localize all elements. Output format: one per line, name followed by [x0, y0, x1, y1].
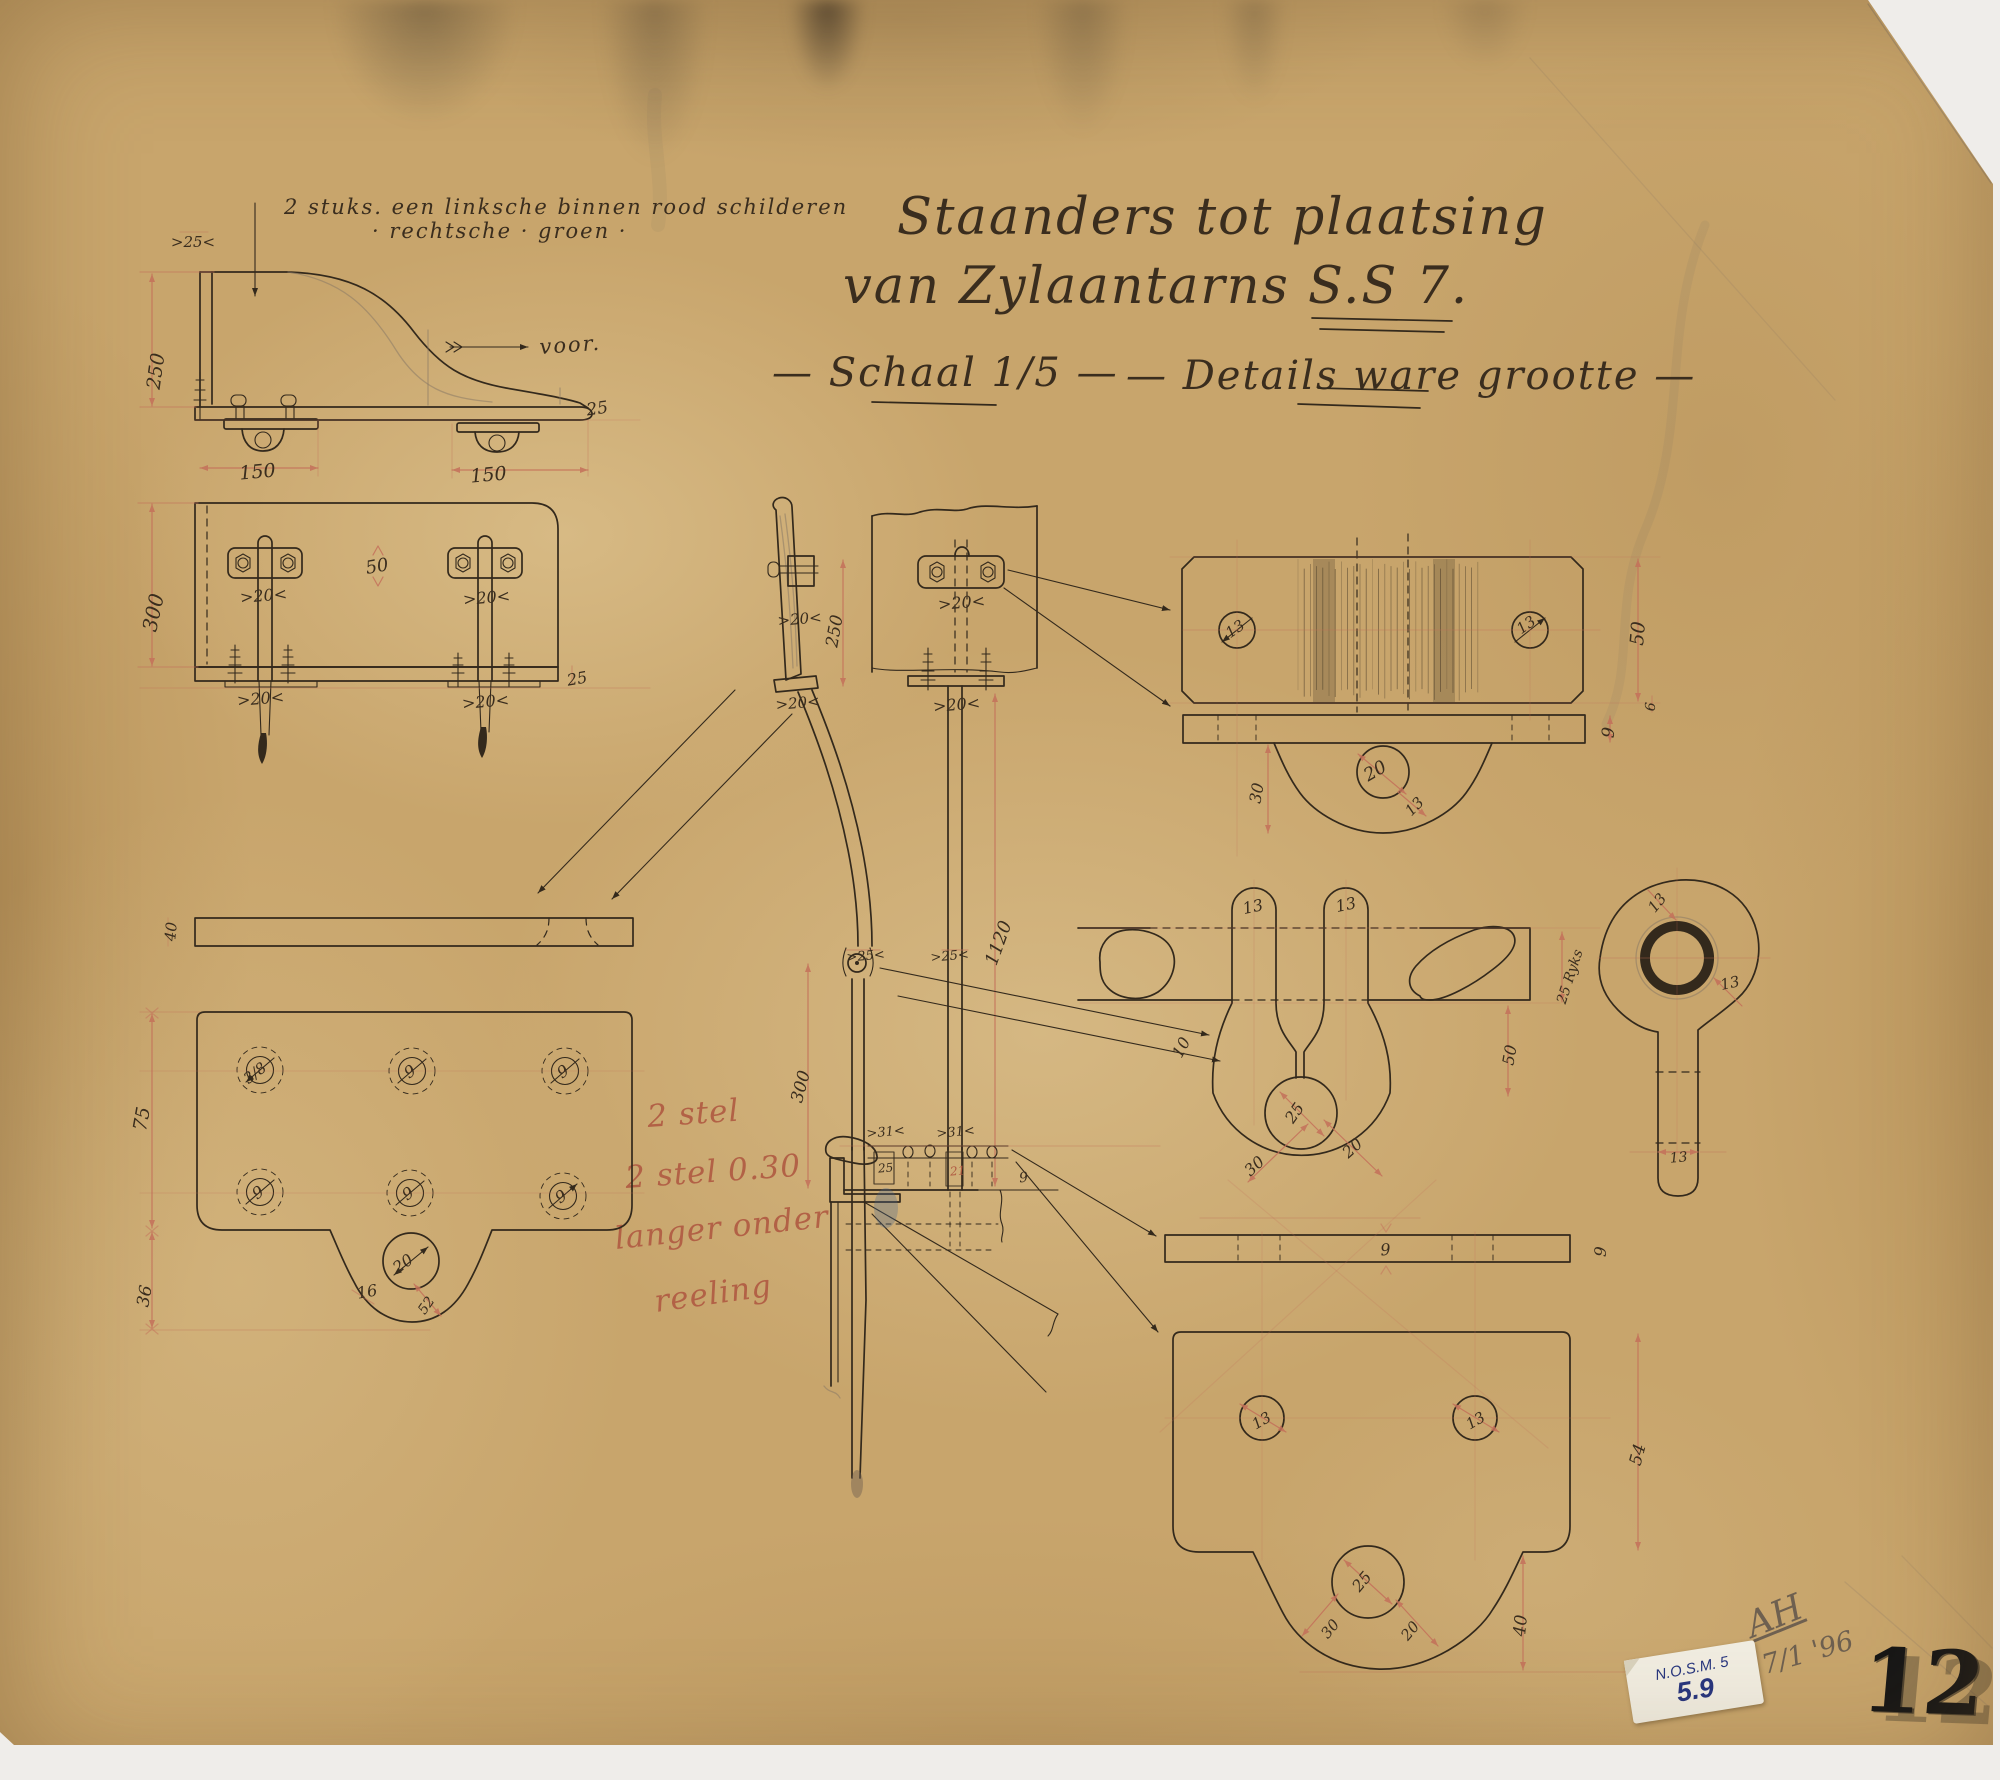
- fork-clevis-detail: [1078, 880, 1600, 1218]
- dimension-label: 25: [1347, 1568, 1375, 1597]
- dimension-label: 20: [1359, 756, 1390, 786]
- dimension-label: 54: [1626, 1442, 1651, 1468]
- dimension-label: 6: [1643, 701, 1660, 711]
- dimension-label: 10: [1168, 1034, 1194, 1061]
- dimension-label: 20: [388, 1250, 416, 1278]
- dimension-label: 50: [1498, 1043, 1520, 1066]
- note-line-1: 2 stuks. een linksche binnen rood schild…: [283, 195, 848, 219]
- stanchion-section-view: [768, 498, 1220, 1188]
- dimension-label: >25<: [846, 947, 885, 965]
- dimension-label: >20<: [462, 586, 511, 609]
- dimension-label: >20<: [461, 690, 510, 713]
- title-line-2: van Zylaantarns S.S 7.: [843, 257, 1469, 316]
- dimension-label: 30: [1245, 781, 1267, 804]
- dimension-label: 300: [787, 1068, 815, 1105]
- dimension-label: 50: [1626, 620, 1650, 646]
- dimension-label: >31<: [866, 1123, 905, 1141]
- direction-label: voor.: [539, 331, 602, 359]
- red-handwritten-note: 2 stel 2 stel 0.30 langer onder reeling: [613, 1093, 832, 1320]
- dimension-label: >20<: [239, 584, 288, 607]
- dimension-label: 13: [1401, 793, 1427, 819]
- dimension-label: 250: [143, 352, 170, 392]
- aged-paper-sheet: Staanders tot plaatsing van Zylaantarns …: [0, 0, 2000, 1780]
- dimension-label: 40: [1510, 1614, 1532, 1638]
- dimension-label: 300: [137, 591, 168, 634]
- lower-plate-detail: [1160, 1180, 1650, 1672]
- dimension-label: 52: [415, 1294, 438, 1318]
- dimension-label: 9: [1591, 1246, 1611, 1258]
- dimension-label: 13: [1334, 893, 1358, 916]
- dimension-label: 150: [469, 462, 507, 487]
- dimension-label: >25<: [930, 947, 969, 965]
- dimension-label: >25<: [171, 233, 215, 251]
- red-note-line: 2 stel: [645, 1093, 741, 1135]
- subtitle-scale: — Schaal 1/5 —: [772, 350, 1119, 396]
- title-block: Staanders tot plaatsing van Zylaantarns …: [772, 188, 1696, 408]
- red-note-line: langer onder: [613, 1199, 832, 1257]
- dimension-label: 16: [355, 1280, 378, 1302]
- note-line-2: · rechtsche · groen ·: [372, 219, 628, 243]
- dimension-label: 150: [238, 459, 276, 484]
- dimension-label: 20: [1396, 1617, 1423, 1644]
- dimension-label: 13: [1513, 612, 1539, 638]
- dimension-label: 9: [1380, 1240, 1392, 1260]
- base-plate-plan-view: [140, 918, 644, 1334]
- dimension-label: 13: [1719, 972, 1741, 994]
- dimension-label: 250: [822, 613, 848, 650]
- dimension-label: 75: [129, 1105, 155, 1133]
- dimension-label: 40: [161, 921, 181, 943]
- dimension-labels-layer: >25<2502515015030050>20<>20<>20<>20<25>2…: [129, 233, 1741, 1645]
- sheet-number-stamp: 12: [1858, 1636, 1988, 1728]
- title-line-1: Staanders tot plaatsing: [897, 188, 1548, 247]
- dimension-label: 50: [364, 554, 390, 579]
- red-note-line: 2 stel 0.30: [623, 1148, 802, 1196]
- dimension-label: 13: [1241, 895, 1265, 918]
- dimension-label: >31<: [936, 1123, 975, 1141]
- dimension-label: 25 Ryks: [1554, 948, 1587, 1007]
- dimension-label: 3/8: [240, 1059, 270, 1088]
- dimension-label: >20<: [932, 693, 981, 716]
- dimension-label: 30: [1240, 1152, 1268, 1180]
- dimension-label: 13: [1644, 890, 1670, 916]
- dimension-label: >20<: [937, 591, 986, 614]
- dimension-label: >20<: [236, 687, 285, 710]
- eye-piece-detail: [1598, 868, 1770, 1196]
- red-note-line: reeling: [652, 1268, 774, 1320]
- dimension-label: 25: [584, 398, 609, 421]
- subtitle-details: — Details ware grootte —: [1126, 353, 1696, 399]
- technical-drawing-canvas: Staanders tot plaatsing van Zylaantarns …: [0, 0, 2000, 1780]
- dimension-label: 9: [1019, 1170, 1029, 1187]
- dimension-label: >20<: [775, 692, 821, 714]
- deck-attachment-detail: [824, 1137, 1160, 1498]
- dimension-label: 30: [1317, 1615, 1343, 1642]
- dimension-label: 1120: [981, 918, 1016, 968]
- dimension-label: 9: [1599, 726, 1620, 739]
- dimension-label: 36: [133, 1284, 156, 1309]
- dimension-label: 20: [1338, 1134, 1367, 1162]
- dimension-label: 25: [876, 1160, 893, 1175]
- dimension-label: 25: [564, 667, 588, 689]
- dimension-label: 13: [1669, 1149, 1688, 1166]
- drawing-sheet-stage: Staanders tot plaatsing van Zylaantarns …: [0, 0, 2000, 1780]
- dimension-label: >20<: [777, 608, 823, 630]
- dimension-label: 13: [1222, 616, 1248, 642]
- dimension-label: 21: [948, 1163, 965, 1178]
- dimension-label: 25: [1280, 1099, 1308, 1127]
